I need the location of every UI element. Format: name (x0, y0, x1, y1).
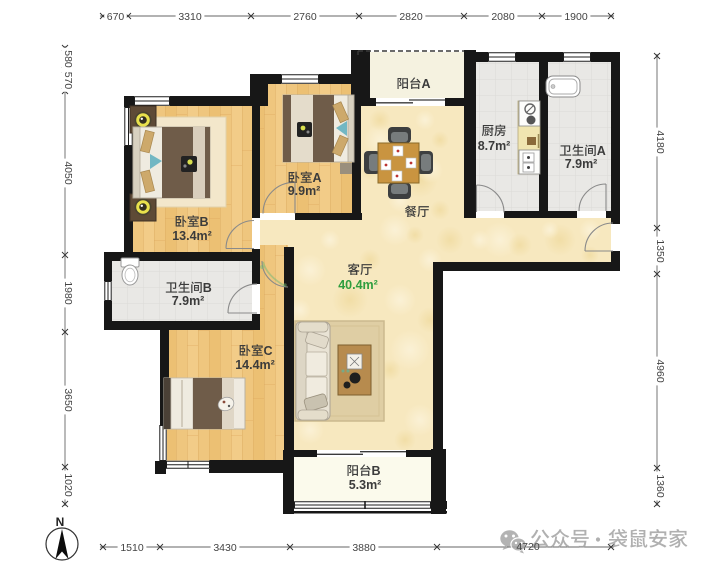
svg-text:A: A (422, 77, 431, 91)
svg-text:A: A (313, 171, 322, 185)
svg-text:14.4m²: 14.4m² (235, 358, 275, 372)
svg-text:B: B (203, 281, 212, 295)
svg-text:4960: 4960 (654, 359, 666, 383)
svg-text:3880: 3880 (352, 542, 376, 554)
svg-text:7.9m²: 7.9m² (565, 157, 598, 171)
svg-text:1900: 1900 (564, 11, 588, 23)
svg-text:1020: 1020 (62, 473, 74, 497)
svg-text:3310: 3310 (178, 11, 202, 23)
svg-text:3430: 3430 (213, 542, 237, 554)
svg-text:A: A (597, 144, 606, 158)
svg-text:13.4m²: 13.4m² (172, 229, 212, 243)
svg-text:N: N (56, 515, 65, 529)
svg-text:4720: 4720 (516, 541, 540, 553)
svg-text:580: 580 (62, 50, 74, 68)
svg-text:1350: 1350 (654, 239, 666, 263)
svg-text:1360: 1360 (654, 474, 666, 498)
svg-text:1980: 1980 (62, 281, 74, 305)
svg-text:C: C (264, 344, 273, 358)
svg-text:8.7m²: 8.7m² (478, 139, 511, 153)
svg-text:670: 670 (107, 11, 125, 23)
svg-text:40.4m²: 40.4m² (338, 278, 378, 292)
svg-text:2820: 2820 (399, 11, 423, 23)
svg-text:B: B (200, 215, 209, 229)
svg-text:5.3m²: 5.3m² (349, 478, 382, 492)
svg-text:2080: 2080 (491, 11, 515, 23)
svg-text:570: 570 (62, 72, 74, 90)
svg-text:4050: 4050 (62, 161, 74, 185)
svg-text:1510: 1510 (120, 542, 144, 554)
svg-text:B: B (372, 464, 381, 478)
svg-text:4180: 4180 (654, 130, 666, 154)
svg-text:9.9m²: 9.9m² (288, 184, 321, 198)
svg-text:2760: 2760 (293, 11, 317, 23)
svg-text:3650: 3650 (62, 388, 74, 412)
svg-text:7.9m²: 7.9m² (172, 294, 205, 308)
